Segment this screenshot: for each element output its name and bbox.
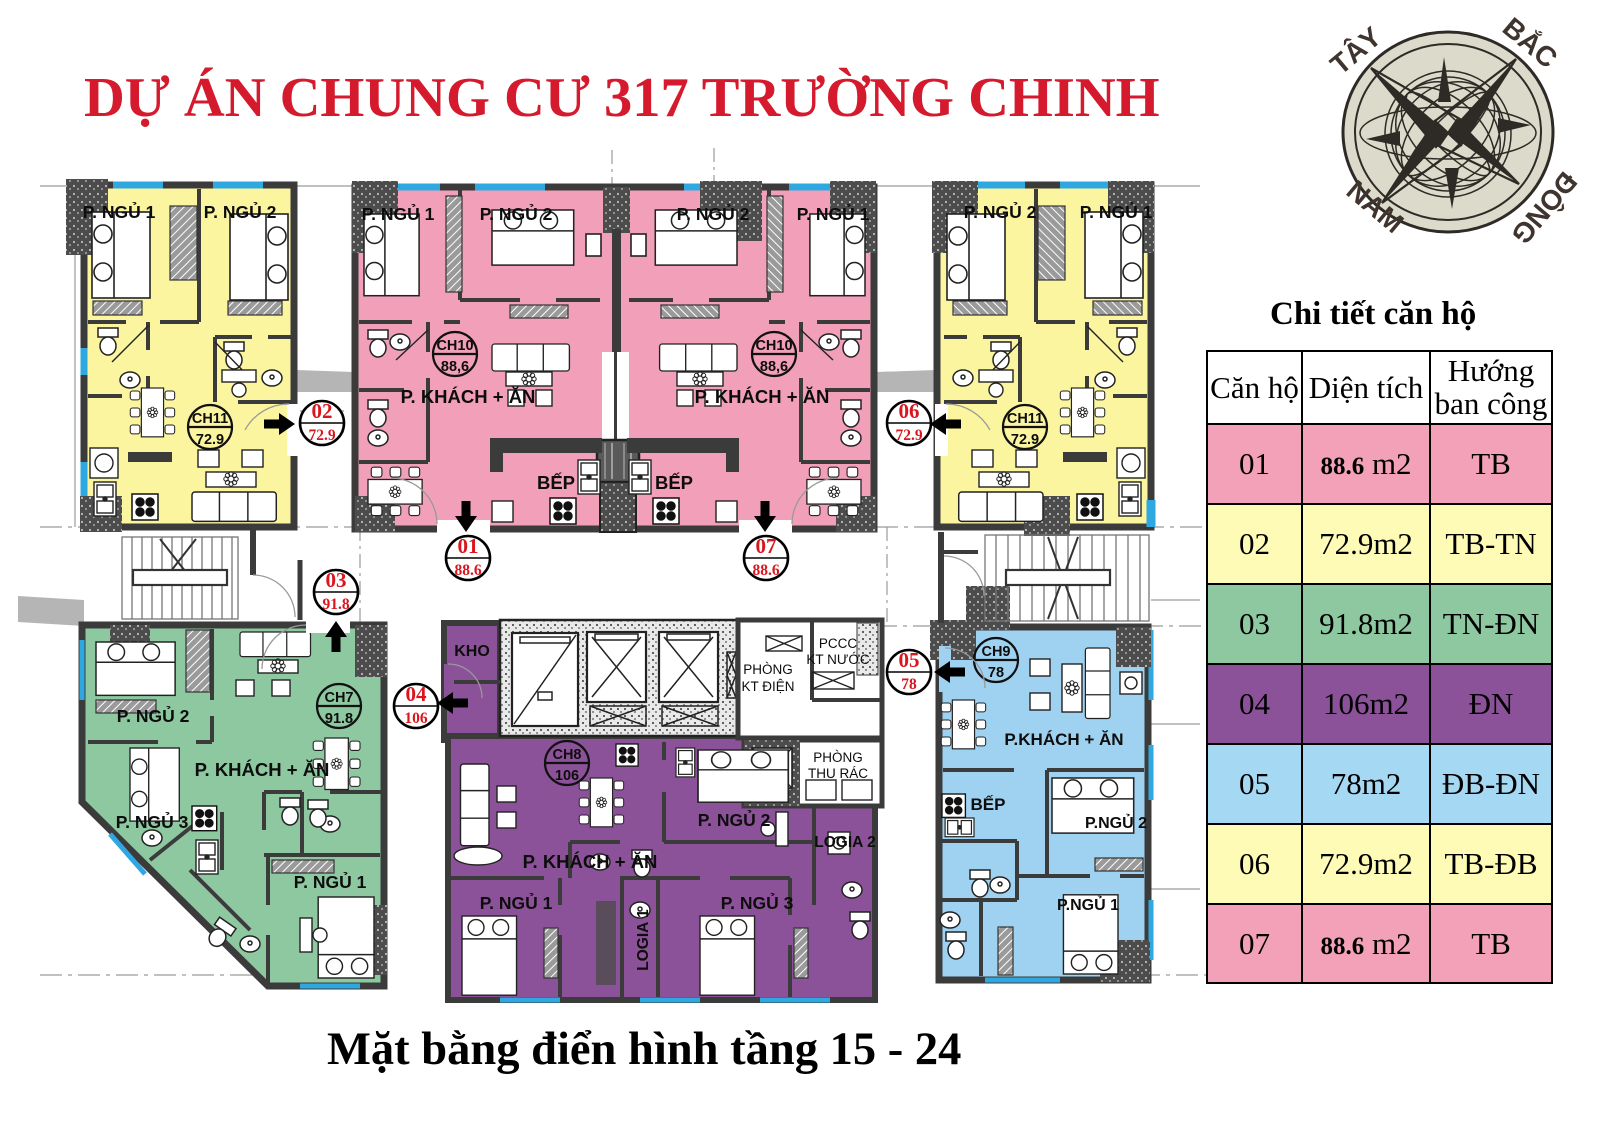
svg-text:P. NGỦ 2: P. NGỦ 2 xyxy=(480,203,553,224)
svg-text:CH11: CH11 xyxy=(1007,411,1043,427)
svg-text:88.6: 88.6 xyxy=(454,562,481,579)
svg-text:106: 106 xyxy=(404,710,428,727)
svg-text:P. KHÁCH + ĂN: P. KHÁCH + ĂN xyxy=(695,386,830,407)
svg-text:BẾP: BẾP xyxy=(537,472,575,493)
svg-text:91.8: 91.8 xyxy=(325,711,353,727)
svg-text:P. KHÁCH + ĂN: P. KHÁCH + ĂN xyxy=(523,851,658,872)
svg-text:P. NGỦ 2: P. NGỦ 2 xyxy=(698,809,771,830)
svg-text:P.NGỦ 2: P.NGỦ 2 xyxy=(1085,813,1147,832)
svg-text:05: 05 xyxy=(899,648,920,672)
svg-text:PCCC: PCCC xyxy=(819,636,858,651)
svg-text:78: 78 xyxy=(988,665,1004,681)
svg-text:P. KHÁCH + ĂN: P. KHÁCH + ĂN xyxy=(401,386,536,407)
svg-text:88,6: 88,6 xyxy=(760,359,788,375)
svg-text:78: 78 xyxy=(901,676,917,693)
svg-text:PHÒNG: PHÒNG xyxy=(743,662,793,677)
svg-text:P. NGỦ 2: P. NGỦ 2 xyxy=(117,705,190,726)
svg-text:106: 106 xyxy=(555,768,579,784)
svg-text:P. NGỦ 3: P. NGỦ 3 xyxy=(721,892,794,913)
svg-text:BẾP: BẾP xyxy=(655,472,693,493)
svg-text:04: 04 xyxy=(406,682,428,706)
svg-text:CH11: CH11 xyxy=(192,411,228,427)
svg-text:91.8: 91.8 xyxy=(322,596,349,613)
svg-text:P. KHÁCH + ĂN: P. KHÁCH + ĂN xyxy=(195,759,330,780)
svg-text:88.6: 88.6 xyxy=(752,562,779,579)
svg-text:02: 02 xyxy=(312,399,333,423)
svg-text:KT NƯỚC: KT NƯỚC xyxy=(806,652,870,667)
svg-text:P. NGỦ 2: P. NGỦ 2 xyxy=(204,201,277,222)
svg-text:CH10: CH10 xyxy=(436,338,473,354)
svg-text:P.KHÁCH + ĂN: P.KHÁCH + ĂN xyxy=(1004,730,1123,749)
svg-text:88,6: 88,6 xyxy=(441,359,469,375)
svg-text:07: 07 xyxy=(756,534,777,558)
svg-text:P. NGỦ 1: P. NGỦ 1 xyxy=(1080,201,1153,222)
svg-text:P. NGỦ 1: P. NGỦ 1 xyxy=(480,892,553,913)
svg-text:P. NGỦ 2: P. NGỦ 2 xyxy=(964,201,1037,222)
svg-text:BẾP: BẾP xyxy=(971,795,1006,814)
svg-text:CH8: CH8 xyxy=(552,747,581,763)
svg-text:72.9: 72.9 xyxy=(895,427,922,444)
svg-text:KT ĐIỆN: KT ĐIỆN xyxy=(741,679,794,694)
svg-text:72.9: 72.9 xyxy=(308,427,335,444)
svg-text:CH10: CH10 xyxy=(755,338,792,354)
svg-text:03: 03 xyxy=(326,568,347,592)
svg-text:THU RÁC: THU RÁC xyxy=(808,766,868,781)
svg-text:P. NGỦ 1: P. NGỦ 1 xyxy=(294,871,367,892)
svg-text:PHÒNG: PHÒNG xyxy=(813,750,863,765)
svg-text:P. NGỦ 2: P. NGỦ 2 xyxy=(677,203,750,224)
svg-text:06: 06 xyxy=(899,399,920,423)
svg-text:LOGIA 2: LOGIA 2 xyxy=(814,834,875,851)
svg-text:01: 01 xyxy=(458,534,479,558)
svg-text:LOGIA 1: LOGIA 1 xyxy=(635,909,652,971)
svg-text:P. NGỦ 1: P. NGỦ 1 xyxy=(83,201,156,222)
svg-text:P. NGỦ 1: P. NGỦ 1 xyxy=(797,203,870,224)
svg-text:P. NGỦ 3: P. NGỦ 3 xyxy=(116,811,189,832)
svg-text:CH7: CH7 xyxy=(324,690,353,706)
svg-text:P.NGỦ 1: P.NGỦ 1 xyxy=(1057,895,1119,914)
svg-text:KHO: KHO xyxy=(454,643,490,660)
svg-text:72.9: 72.9 xyxy=(1011,432,1039,448)
svg-text:72.9: 72.9 xyxy=(196,432,224,448)
svg-text:P. NGỦ 1: P. NGỦ 1 xyxy=(362,203,435,224)
svg-text:CH9: CH9 xyxy=(981,644,1010,660)
